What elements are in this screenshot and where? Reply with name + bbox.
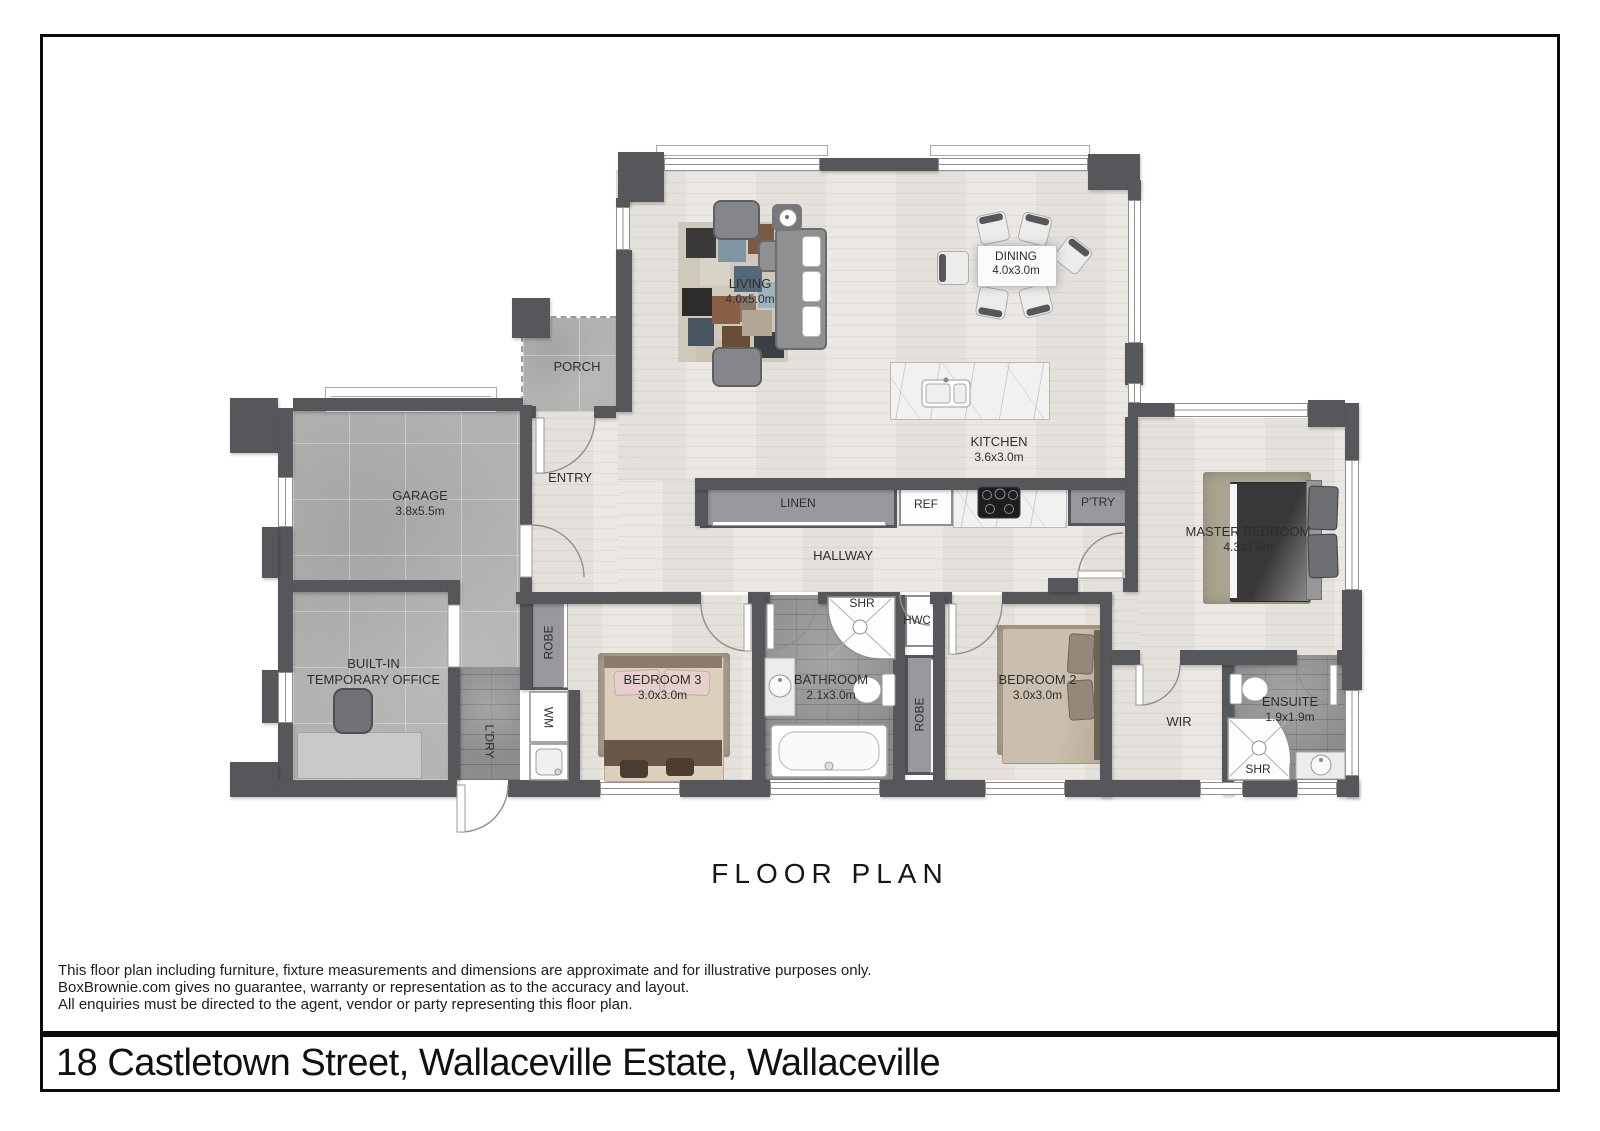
room-label-bedroom3: BEDROOM 3 3.0x3.0m xyxy=(605,672,720,703)
robe3-sliding-door xyxy=(563,601,568,688)
room-dim: 2.1x3.0m xyxy=(775,688,887,703)
room-dim: 3.0x3.0m xyxy=(980,688,1095,703)
lamp-dot xyxy=(785,215,789,219)
wall xyxy=(1128,180,1141,200)
room-name: ENTRY xyxy=(530,470,610,486)
fixture-label-linen: LINEN xyxy=(698,496,898,511)
dining-chair xyxy=(937,251,969,285)
office-chair xyxy=(333,688,373,734)
room-label-ensuite: ENSUITE 1.9x1.9m xyxy=(1240,694,1340,725)
wall xyxy=(880,780,985,797)
fixture-label-ref: REF xyxy=(896,497,956,512)
wall xyxy=(616,250,632,412)
armchair xyxy=(713,200,760,240)
fixture-name: HWC xyxy=(896,614,938,628)
wall xyxy=(1345,403,1359,460)
porch-pillar xyxy=(512,298,550,338)
wall xyxy=(1125,343,1143,385)
armchair xyxy=(712,347,762,387)
wall xyxy=(278,408,293,477)
window xyxy=(600,782,680,795)
room-label-hallway: HALLWAY xyxy=(783,548,903,564)
linen-sliding-track xyxy=(712,521,886,526)
cushion xyxy=(620,760,648,778)
disclaimer-line: All enquiries must be directed to the ag… xyxy=(58,996,871,1013)
wall xyxy=(230,398,278,453)
sofa-cushion xyxy=(802,236,821,267)
room-label-porch: PORCH xyxy=(537,359,617,375)
room-dim: 4.3x3.9m xyxy=(1180,540,1316,555)
wall xyxy=(1243,780,1297,797)
room-label-wir: WIR xyxy=(1139,714,1219,730)
kitchen-island xyxy=(890,362,1050,420)
disclaimer-line: BoxBrownie.com gives no guarantee, warra… xyxy=(58,979,871,996)
page-title: FLOOR PLAN xyxy=(230,858,1430,890)
room-name: BEDROOM 3 xyxy=(605,672,720,688)
hallway-wall xyxy=(1002,592,1112,604)
wall xyxy=(1065,780,1200,797)
address-text: 18 Castletown Street, Wallaceville Estat… xyxy=(56,1042,940,1085)
window xyxy=(278,672,293,723)
fixture-label-shr-bathroom: SHR xyxy=(842,596,882,611)
wall xyxy=(520,405,532,525)
chair-back xyxy=(1025,213,1050,226)
window xyxy=(1200,782,1243,795)
room-name: WIR xyxy=(1139,714,1219,730)
window xyxy=(1345,460,1359,590)
floor-plan-page: LIVING 4.0x5.0m DINING 4.0x3.0m KITCHEN … xyxy=(0,0,1600,1131)
wall xyxy=(1342,590,1362,690)
room-name: PORCH xyxy=(537,359,617,375)
room-label-bathroom: BATHROOM 2.1x3.0m xyxy=(775,672,887,703)
room-dim: 3.8x5.5m xyxy=(350,504,490,519)
fixture-name: SHR xyxy=(842,596,882,611)
room-label-garage: GARAGE 3.8x5.5m xyxy=(350,488,490,519)
window-sill xyxy=(930,145,1090,156)
wall xyxy=(1100,592,1112,797)
wall xyxy=(752,595,765,780)
room-name: BATHROOM xyxy=(775,672,887,688)
fixture-name: REF xyxy=(896,497,956,512)
chair-back xyxy=(979,213,1004,225)
room-label-entry: ENTRY xyxy=(530,470,610,486)
wall xyxy=(1123,578,1138,592)
wall xyxy=(680,780,770,797)
wall xyxy=(1308,400,1345,427)
wall xyxy=(278,780,457,797)
wall xyxy=(262,527,278,578)
room-name: BEDROOM 2 xyxy=(980,672,1095,688)
room-name: ENSUITE xyxy=(1240,694,1340,710)
window xyxy=(1128,383,1141,403)
wall xyxy=(1128,403,1174,417)
window xyxy=(770,782,880,795)
wall xyxy=(568,690,580,780)
room-dim: 4.0x3.0m xyxy=(977,264,1055,278)
window xyxy=(985,782,1065,795)
wall xyxy=(616,198,630,207)
wall xyxy=(230,762,278,797)
room-name: DINING xyxy=(977,249,1055,264)
pillow xyxy=(1067,633,1096,675)
wall xyxy=(618,152,664,202)
floor-plan: LIVING 4.0x5.0m DINING 4.0x3.0m KITCHEN … xyxy=(230,140,1365,840)
wall xyxy=(1180,650,1297,665)
room-name: GARAGE xyxy=(350,488,490,504)
window xyxy=(1345,690,1359,776)
disclaimer-line: This floor plan including furniture, fix… xyxy=(58,962,871,979)
window xyxy=(616,207,630,250)
door-arc-rear xyxy=(461,785,508,832)
room-label-dining: DINING 4.0x3.0m xyxy=(977,249,1055,278)
office-wall xyxy=(293,580,450,592)
room-name: TEMPORARY OFFICE xyxy=(296,672,451,688)
window xyxy=(938,158,1088,171)
fixture-label-pantry: P'TRY xyxy=(1068,495,1128,510)
room-label-living: LIVING 4.0x5.0m xyxy=(680,276,820,307)
room-label-bedroom2: BEDROOM 2 3.0x3.0m xyxy=(980,672,1095,703)
fixture-label-robe-bedroom3: ROBE xyxy=(542,603,557,683)
fixture-label-hwc: HWC xyxy=(896,614,938,628)
sofa-cushion xyxy=(802,306,821,337)
fixture-name: SHR xyxy=(1238,762,1278,777)
wall xyxy=(1048,578,1078,592)
fixture-name: LINEN xyxy=(698,496,898,511)
door-leaf xyxy=(457,785,465,832)
room-name: HALLWAY xyxy=(783,548,903,564)
master-corridor-floor xyxy=(1112,592,1138,655)
wall xyxy=(820,158,938,171)
wall xyxy=(594,406,616,418)
office-wall xyxy=(448,580,460,605)
room-dim: 1.9x1.9m xyxy=(1240,710,1340,725)
entry-floor xyxy=(523,412,618,595)
room-label-kitchen: KITCHEN 3.6x3.0m xyxy=(944,434,1054,465)
dining-chair xyxy=(975,286,1010,321)
office-desk xyxy=(297,732,422,779)
kitchen-wall xyxy=(695,478,1128,490)
cushion xyxy=(666,758,694,776)
fixture-label-shr-ensuite: SHR xyxy=(1238,762,1278,777)
window xyxy=(1128,200,1141,343)
disclaimer: This floor plan including furniture, fix… xyxy=(58,962,871,1013)
fixture-label-wm: WM xyxy=(541,678,556,758)
room-dim: 3.0x3.0m xyxy=(605,688,720,703)
window xyxy=(1174,403,1308,417)
kitchen-counter xyxy=(953,484,1067,528)
window xyxy=(664,158,820,171)
room-dim: 4.0x5.0m xyxy=(680,292,820,307)
room-name: MASTER BEDROOM xyxy=(1180,524,1316,540)
wall xyxy=(262,670,278,723)
room-name: KITCHEN xyxy=(944,434,1054,450)
room-name: BUILT-IN xyxy=(296,656,451,672)
wall xyxy=(1222,655,1234,795)
chair-back xyxy=(939,254,946,282)
room-dim: 3.6x3.0m xyxy=(944,450,1054,465)
room-name: LIVING xyxy=(680,276,820,292)
window xyxy=(1297,782,1337,795)
wall xyxy=(508,780,600,797)
wall xyxy=(293,398,523,411)
wall xyxy=(278,723,293,780)
room-label-master: MASTER BEDROOM 4.3x3.9m xyxy=(1180,524,1316,555)
chair-back xyxy=(978,307,1003,318)
window xyxy=(278,477,293,527)
wall xyxy=(1337,780,1359,797)
fixture-label-robe-bedroom2: ROBE xyxy=(913,675,928,755)
fixture-label-laundry: L'DRY xyxy=(482,702,497,782)
room-label-office: BUILT-IN TEMPORARY OFFICE xyxy=(296,656,451,689)
wall xyxy=(1112,650,1140,665)
fixture-name: P'TRY xyxy=(1068,495,1128,510)
bedroom3-headboard xyxy=(604,656,722,668)
dining-chair xyxy=(975,210,1011,246)
window-sill xyxy=(656,145,828,156)
wall xyxy=(278,527,293,672)
